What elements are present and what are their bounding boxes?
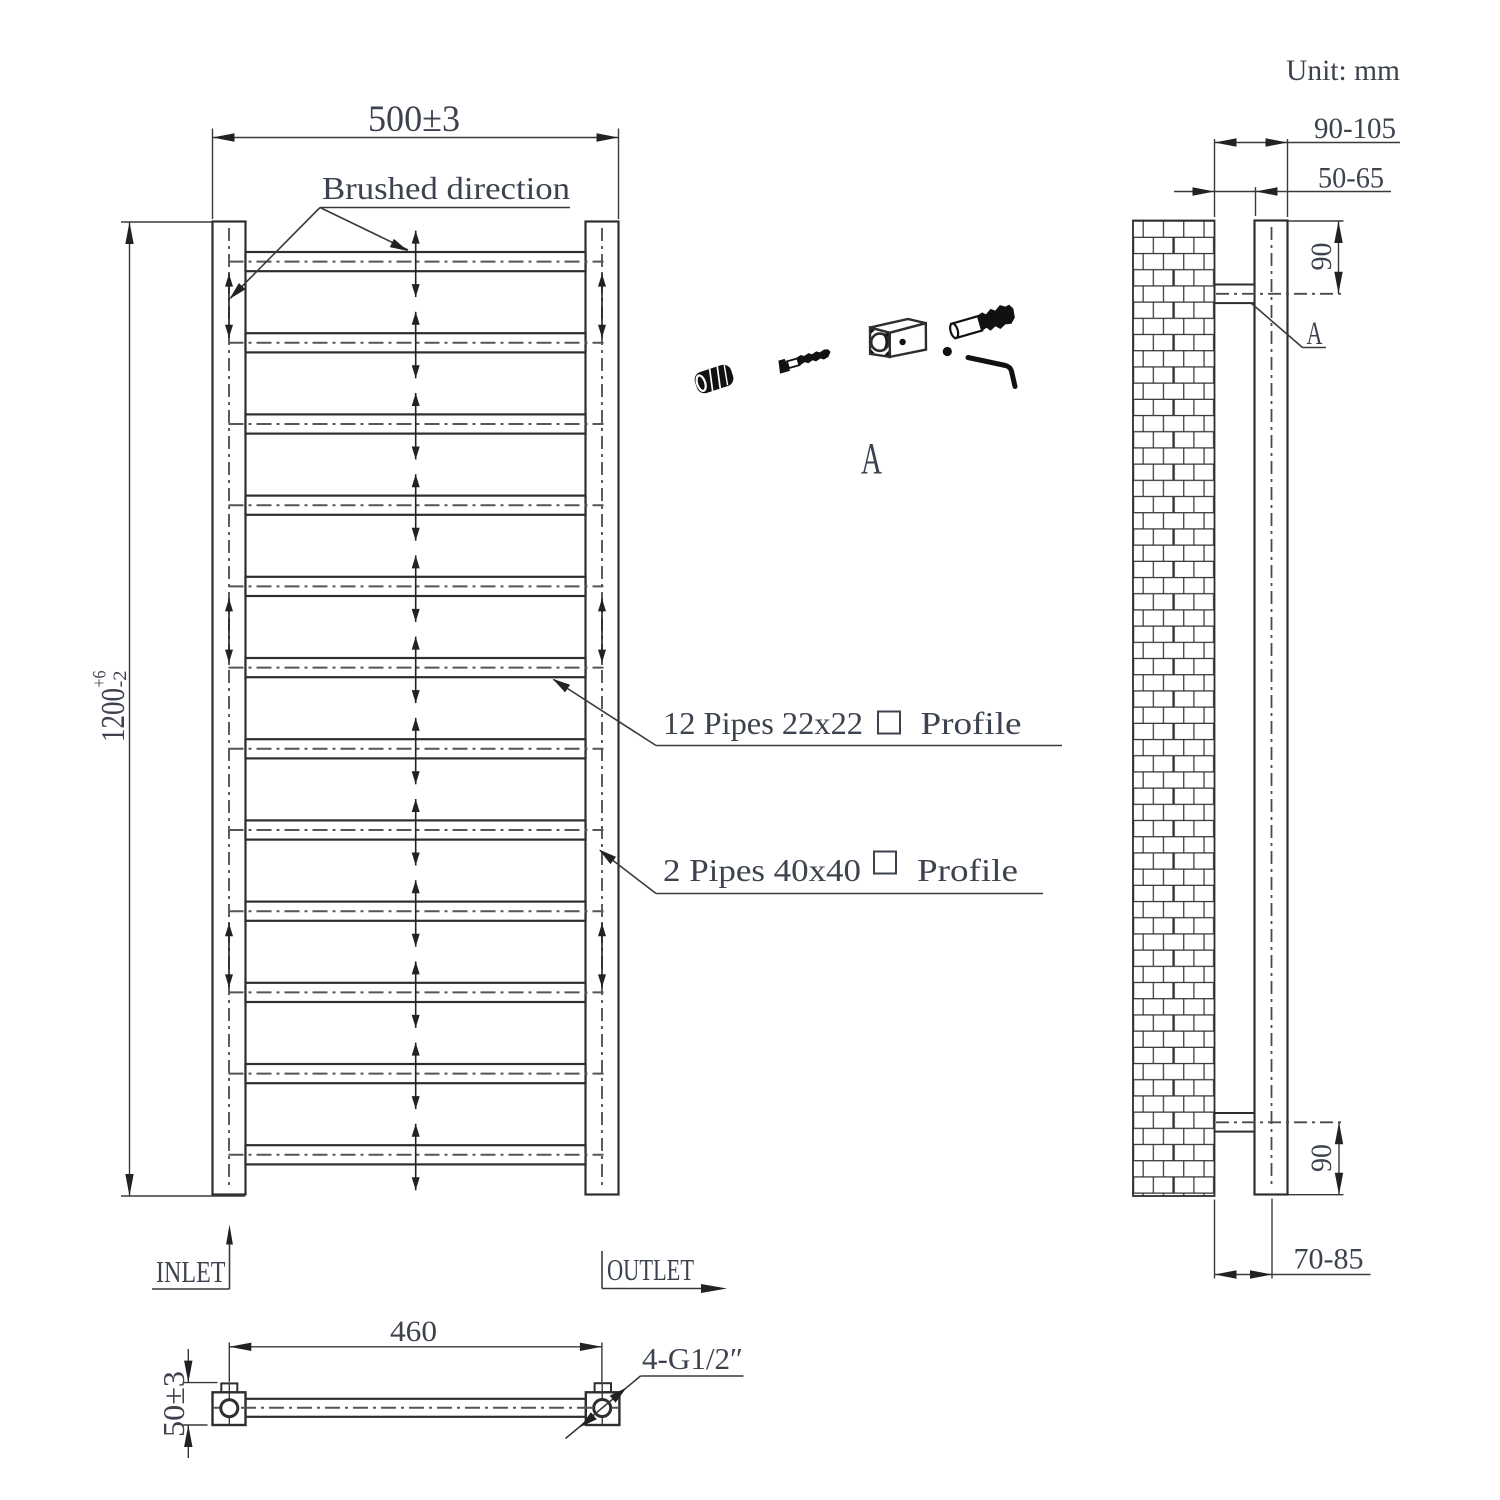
svg-text:90: 90 (1305, 1144, 1338, 1172)
svg-text:90: 90 (1305, 243, 1338, 271)
svg-text:4-G1/2″: 4-G1/2″ (642, 1341, 743, 1376)
svg-text:1200: 1200 (95, 688, 132, 742)
svg-text:460: 460 (390, 1315, 437, 1348)
svg-text:50-65: 50-65 (1318, 162, 1384, 195)
svg-text:70-85: 70-85 (1294, 1243, 1364, 1276)
svg-text:INLET: INLET (156, 1254, 226, 1289)
svg-text:+6: +6 (90, 671, 111, 688)
svg-text:2 Pipes 40x40: 2 Pipes 40x40 (663, 852, 861, 888)
svg-text:A: A (1307, 316, 1323, 352)
svg-text:90-105: 90-105 (1314, 112, 1396, 145)
svg-text:Unit: mm: Unit: mm (1286, 54, 1400, 87)
svg-text:Brushed direction: Brushed direction (322, 170, 570, 206)
svg-text:Profile: Profile (921, 705, 1022, 741)
svg-text:12 Pipes 22x22: 12 Pipes 22x22 (663, 705, 863, 741)
svg-text:OUTLET: OUTLET (607, 1252, 694, 1287)
svg-text:500±3: 500±3 (368, 99, 460, 140)
svg-text:-2: -2 (110, 671, 131, 688)
svg-text:A: A (861, 434, 882, 483)
svg-text:Profile: Profile (917, 852, 1018, 888)
svg-text:50±3: 50±3 (156, 1371, 191, 1437)
